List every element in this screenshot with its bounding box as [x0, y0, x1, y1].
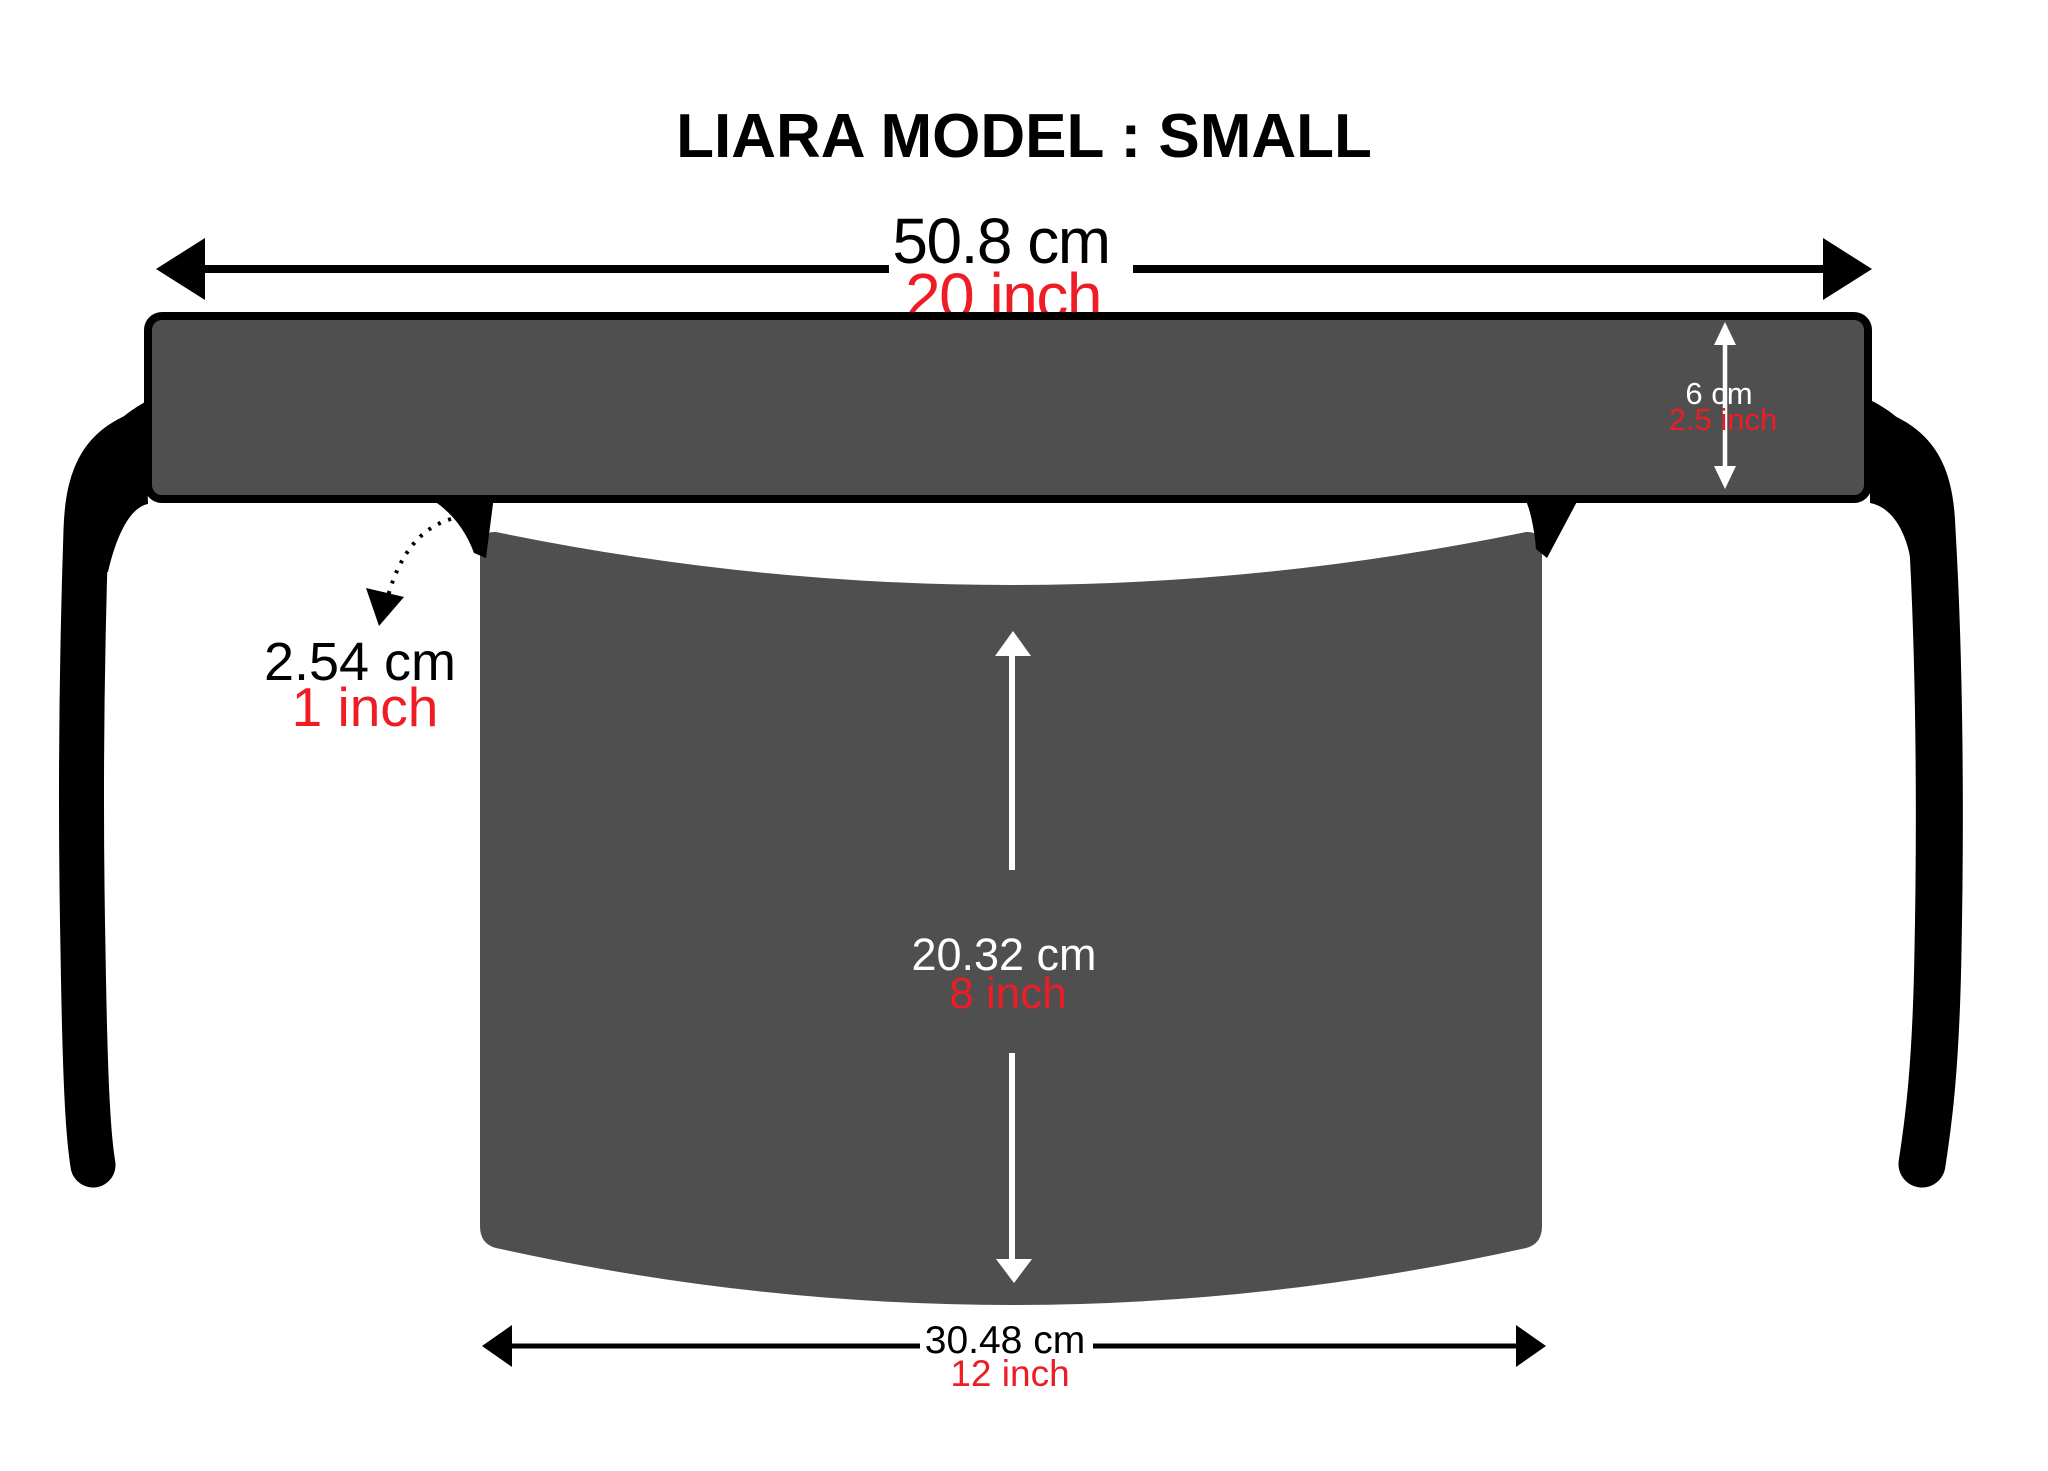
svg-text:12 inch: 12 inch	[950, 1353, 1069, 1394]
svg-text:LIARA MODEL : SMALL: LIARA MODEL : SMALL	[676, 102, 1372, 171]
svg-text:2.5 inch: 2.5 inch	[1669, 402, 1778, 437]
svg-text:8 inch: 8 inch	[949, 969, 1066, 1018]
svg-text:1 inch: 1 inch	[292, 676, 439, 738]
